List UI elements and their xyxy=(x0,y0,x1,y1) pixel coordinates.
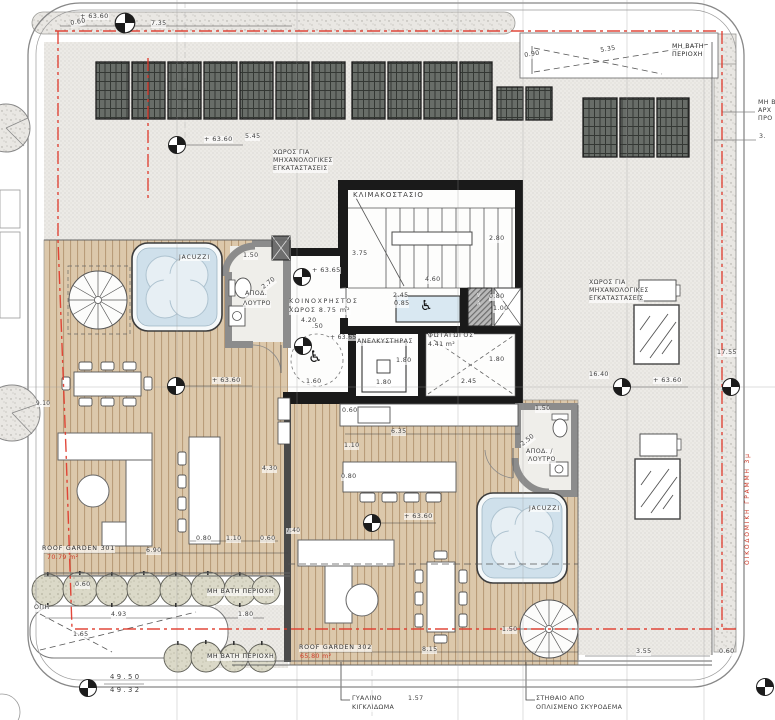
plan-canvas xyxy=(0,0,775,720)
solar-panel-array-3 xyxy=(583,98,689,157)
common-area xyxy=(283,248,348,404)
skylight-2 xyxy=(634,305,679,364)
no-walk-strip xyxy=(520,33,718,78)
solar-panel-array-1 xyxy=(96,62,492,119)
shaft-boxes xyxy=(460,288,521,326)
skylight-1 xyxy=(639,280,680,301)
skylight-3 xyxy=(640,434,681,456)
floor-plan-drawing: + 63.600.607.350.905.35ΜΗ ΒΑΤΗΠΕΡΙΟΧΗ5.4… xyxy=(0,0,775,720)
jacuzzi-2 xyxy=(477,493,567,583)
coffee-table-1 xyxy=(77,475,109,507)
skylight-4 xyxy=(635,459,680,519)
coffee-table-2 xyxy=(346,584,378,616)
wheelchair-lift xyxy=(396,296,460,322)
kitchen-counter-302 xyxy=(340,404,518,426)
